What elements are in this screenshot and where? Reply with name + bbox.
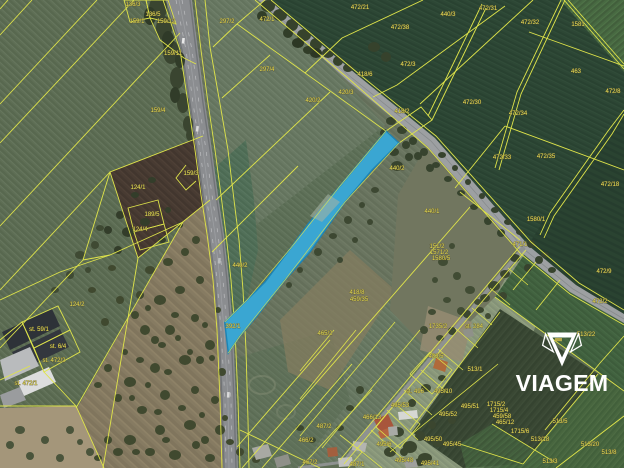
- svg-text:st. 6/4: st. 6/4: [50, 344, 67, 350]
- svg-text:159/3: 159/3: [183, 171, 199, 177]
- svg-text:472/3: 472/3: [400, 62, 416, 68]
- svg-text:1715/6: 1715/6: [511, 429, 530, 435]
- svg-text:513/20: 513/20: [581, 442, 600, 448]
- svg-text:465/12: 465/12: [496, 420, 515, 426]
- svg-text:513/1: 513/1: [467, 367, 483, 373]
- svg-text:1580/5: 1580/5: [432, 256, 451, 262]
- svg-text:471/1: 471/1: [512, 242, 528, 248]
- svg-text:513/18: 513/18: [531, 437, 550, 443]
- svg-text:513/3: 513/3: [542, 459, 558, 465]
- svg-text:472/21: 472/21: [351, 5, 370, 11]
- svg-text:VIAGEM: VIAGEM: [516, 370, 609, 396]
- svg-text:495/10: 495/10: [434, 389, 453, 395]
- svg-text:124/4: 124/4: [132, 227, 148, 233]
- svg-text:472/18: 472/18: [601, 182, 620, 188]
- svg-text:1735/2: 1735/2: [429, 324, 448, 330]
- svg-text:440/3: 440/3: [440, 12, 456, 18]
- svg-text:124/1: 124/1: [130, 185, 146, 191]
- svg-text:465/2: 465/2: [317, 331, 333, 337]
- svg-text:472/34: 472/34: [509, 111, 528, 117]
- svg-text:472/38: 472/38: [391, 25, 410, 31]
- svg-text:159/1: 159/1: [129, 19, 145, 25]
- svg-text:495/52: 495/52: [439, 412, 458, 418]
- svg-text:466/2: 466/2: [298, 438, 314, 444]
- svg-text:495/50: 495/50: [424, 437, 443, 443]
- svg-text:st. 59/1: st. 59/1: [29, 327, 49, 333]
- svg-text:472/35: 472/35: [537, 154, 556, 160]
- svg-text:513/5: 513/5: [552, 419, 568, 425]
- svg-text:459/35: 459/35: [350, 297, 369, 303]
- svg-text:st. 472/2: st. 472/2: [42, 358, 66, 364]
- svg-text:467/2: 467/2: [302, 460, 318, 466]
- svg-text:136/3: 136/3: [125, 2, 141, 8]
- svg-text:1580/1: 1580/1: [527, 217, 546, 223]
- svg-text:124/2: 124/2: [69, 302, 85, 308]
- svg-text:159/11: 159/11: [164, 51, 183, 57]
- svg-text:136/5: 136/5: [145, 12, 161, 18]
- svg-text:189/5: 189/5: [144, 212, 160, 218]
- svg-text:159/4: 159/4: [150, 108, 166, 114]
- svg-text:495/48: 495/48: [395, 458, 414, 464]
- svg-text:495/6: 495/6: [376, 442, 392, 448]
- svg-text:440/2: 440/2: [232, 263, 248, 269]
- svg-text:472/30: 472/30: [463, 100, 482, 106]
- svg-text:463: 463: [571, 69, 582, 75]
- svg-text:472/31: 472/31: [479, 6, 498, 12]
- svg-text:495/41: 495/41: [421, 461, 440, 467]
- svg-text:487/1: 487/1: [349, 462, 365, 468]
- svg-text:297/4: 297/4: [259, 67, 275, 73]
- svg-text:483/5: 483/5: [428, 354, 444, 360]
- svg-text:159/12: 159/12: [157, 19, 176, 25]
- svg-text:472/9: 472/9: [596, 269, 612, 275]
- svg-text:418/2: 418/2: [394, 109, 410, 115]
- svg-text:472/32: 472/32: [521, 20, 540, 26]
- svg-text:487/2: 487/2: [316, 424, 332, 430]
- svg-text:472/2: 472/2: [592, 299, 608, 305]
- svg-text:472/8: 472/8: [605, 89, 621, 95]
- svg-text:1581: 1581: [571, 22, 585, 28]
- svg-text:472/1: 472/1: [259, 17, 275, 23]
- svg-text:392/1: 392/1: [225, 324, 241, 330]
- svg-text:420/2: 420/2: [305, 98, 321, 104]
- svg-text:440/2: 440/2: [389, 166, 405, 172]
- svg-text:418/6: 418/6: [357, 72, 373, 78]
- svg-text:495/53: 495/53: [391, 403, 410, 409]
- svg-text:st. 496: st. 496: [406, 389, 425, 395]
- svg-text:420/3: 420/3: [338, 90, 354, 96]
- svg-text:495/51: 495/51: [461, 404, 480, 410]
- svg-text:495/45: 495/45: [443, 442, 462, 448]
- svg-text:297/2: 297/2: [219, 19, 235, 25]
- svg-text:st. 472/1: st. 472/1: [14, 381, 38, 387]
- svg-text:472/33: 472/33: [493, 155, 512, 161]
- svg-text:466/13: 466/13: [363, 415, 382, 421]
- svg-text:513/8: 513/8: [601, 450, 617, 456]
- svg-text:st. 284: st. 284: [465, 324, 484, 330]
- svg-text:440/1: 440/1: [424, 209, 440, 215]
- svg-text:418/8: 418/8: [349, 290, 365, 296]
